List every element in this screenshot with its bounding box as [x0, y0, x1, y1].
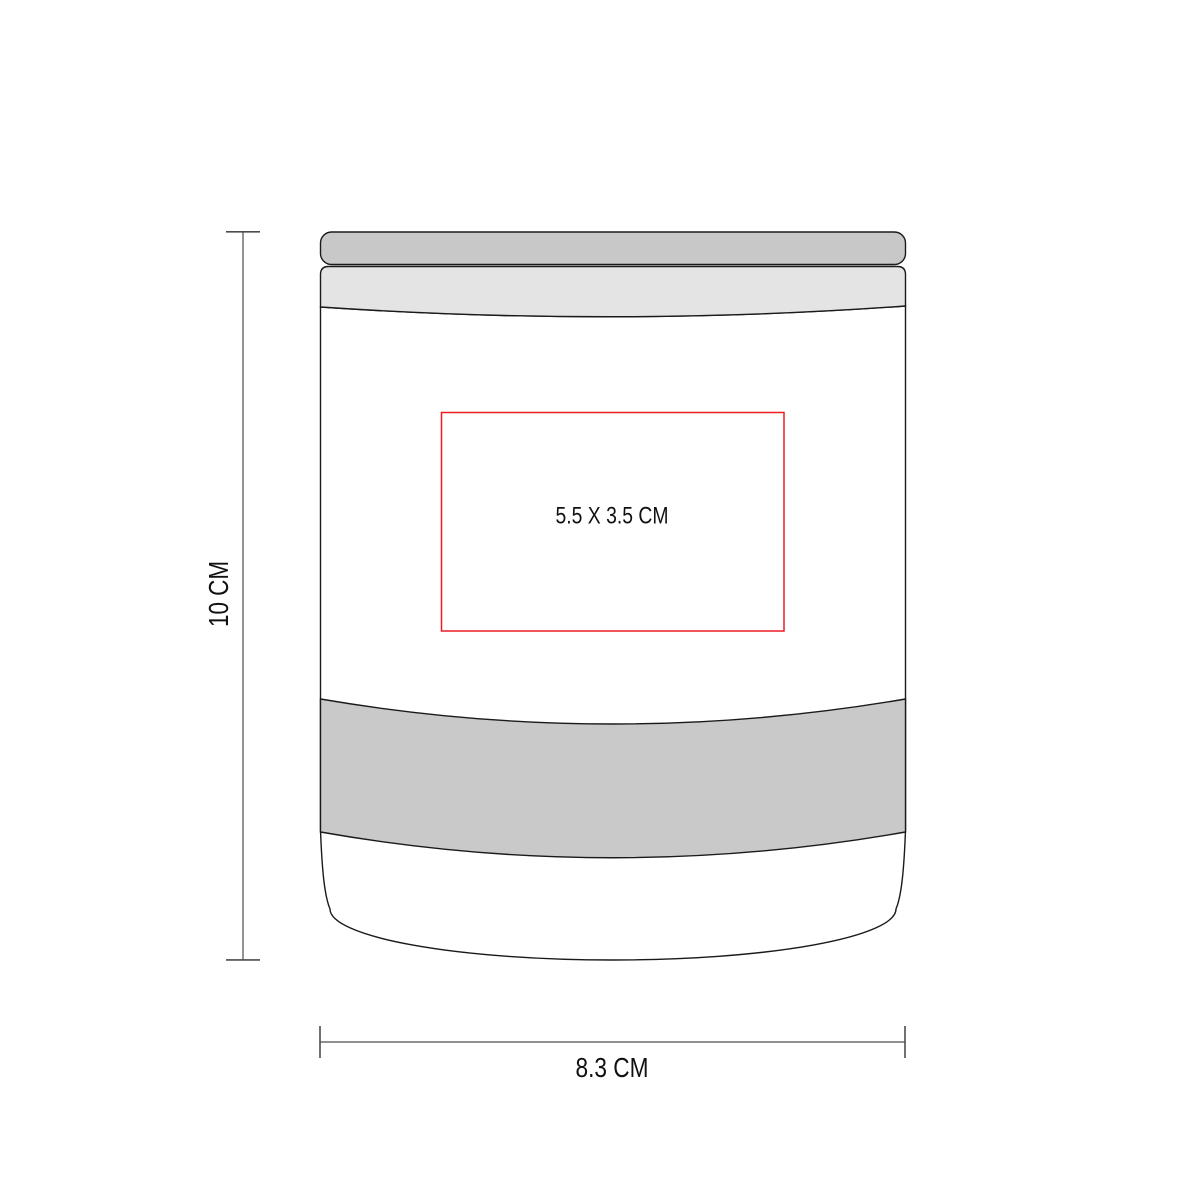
svg-text:5.5 X 3.5 CM: 5.5 X 3.5 CM [556, 503, 669, 530]
svg-text:8.3 CM: 8.3 CM [576, 1052, 649, 1083]
svg-text:10 CM: 10 CM [203, 561, 234, 627]
